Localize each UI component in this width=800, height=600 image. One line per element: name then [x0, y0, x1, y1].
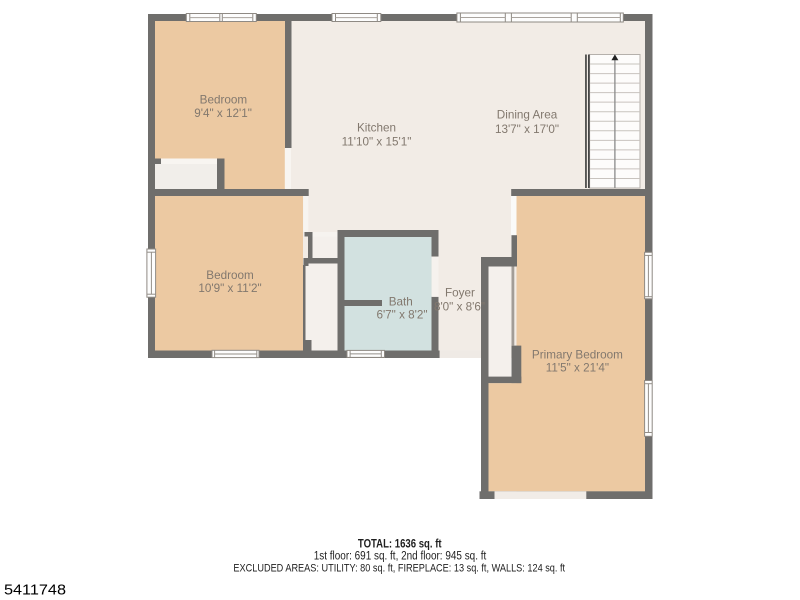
svg-text:13'7" x 17'0": 13'7" x 17'0": [495, 123, 559, 136]
svg-text:10'9" x 11'2": 10'9" x 11'2": [198, 282, 261, 295]
svg-text:6'7" x 8'2": 6'7" x 8'2": [376, 308, 427, 321]
svg-text:8'0" x 8'6": 8'0" x 8'6": [434, 301, 485, 314]
svg-text:1st floor: 691 sq. ft, 2nd flo: 1st floor: 691 sq. ft, 2nd floor: 945 sq…: [314, 550, 487, 562]
svg-text:Bath: Bath: [389, 296, 413, 309]
svg-text:Primary Bedroom: Primary Bedroom: [532, 348, 623, 361]
svg-text:Bedroom: Bedroom: [200, 94, 247, 107]
svg-text:Dining Area: Dining Area: [497, 109, 558, 122]
svg-text:9'4" x 12'1": 9'4" x 12'1": [194, 107, 252, 120]
svg-text:11'10" x 15'1": 11'10" x 15'1": [342, 135, 412, 148]
svg-text:Foyer: Foyer: [445, 287, 475, 300]
svg-text:Bedroom: Bedroom: [206, 269, 253, 282]
svg-text:EXCLUDED AREAS: UTILITY: 80 sq: EXCLUDED AREAS: UTILITY: 80 sq. ft, FIRE…: [233, 562, 565, 574]
svg-text:Kitchen: Kitchen: [357, 122, 396, 135]
svg-text:11'5" x 21'4": 11'5" x 21'4": [546, 362, 609, 375]
svg-text:5411748: 5411748: [4, 582, 66, 598]
svg-text:TOTAL: 1636 sq. ft: TOTAL: 1636 sq. ft: [358, 539, 442, 551]
